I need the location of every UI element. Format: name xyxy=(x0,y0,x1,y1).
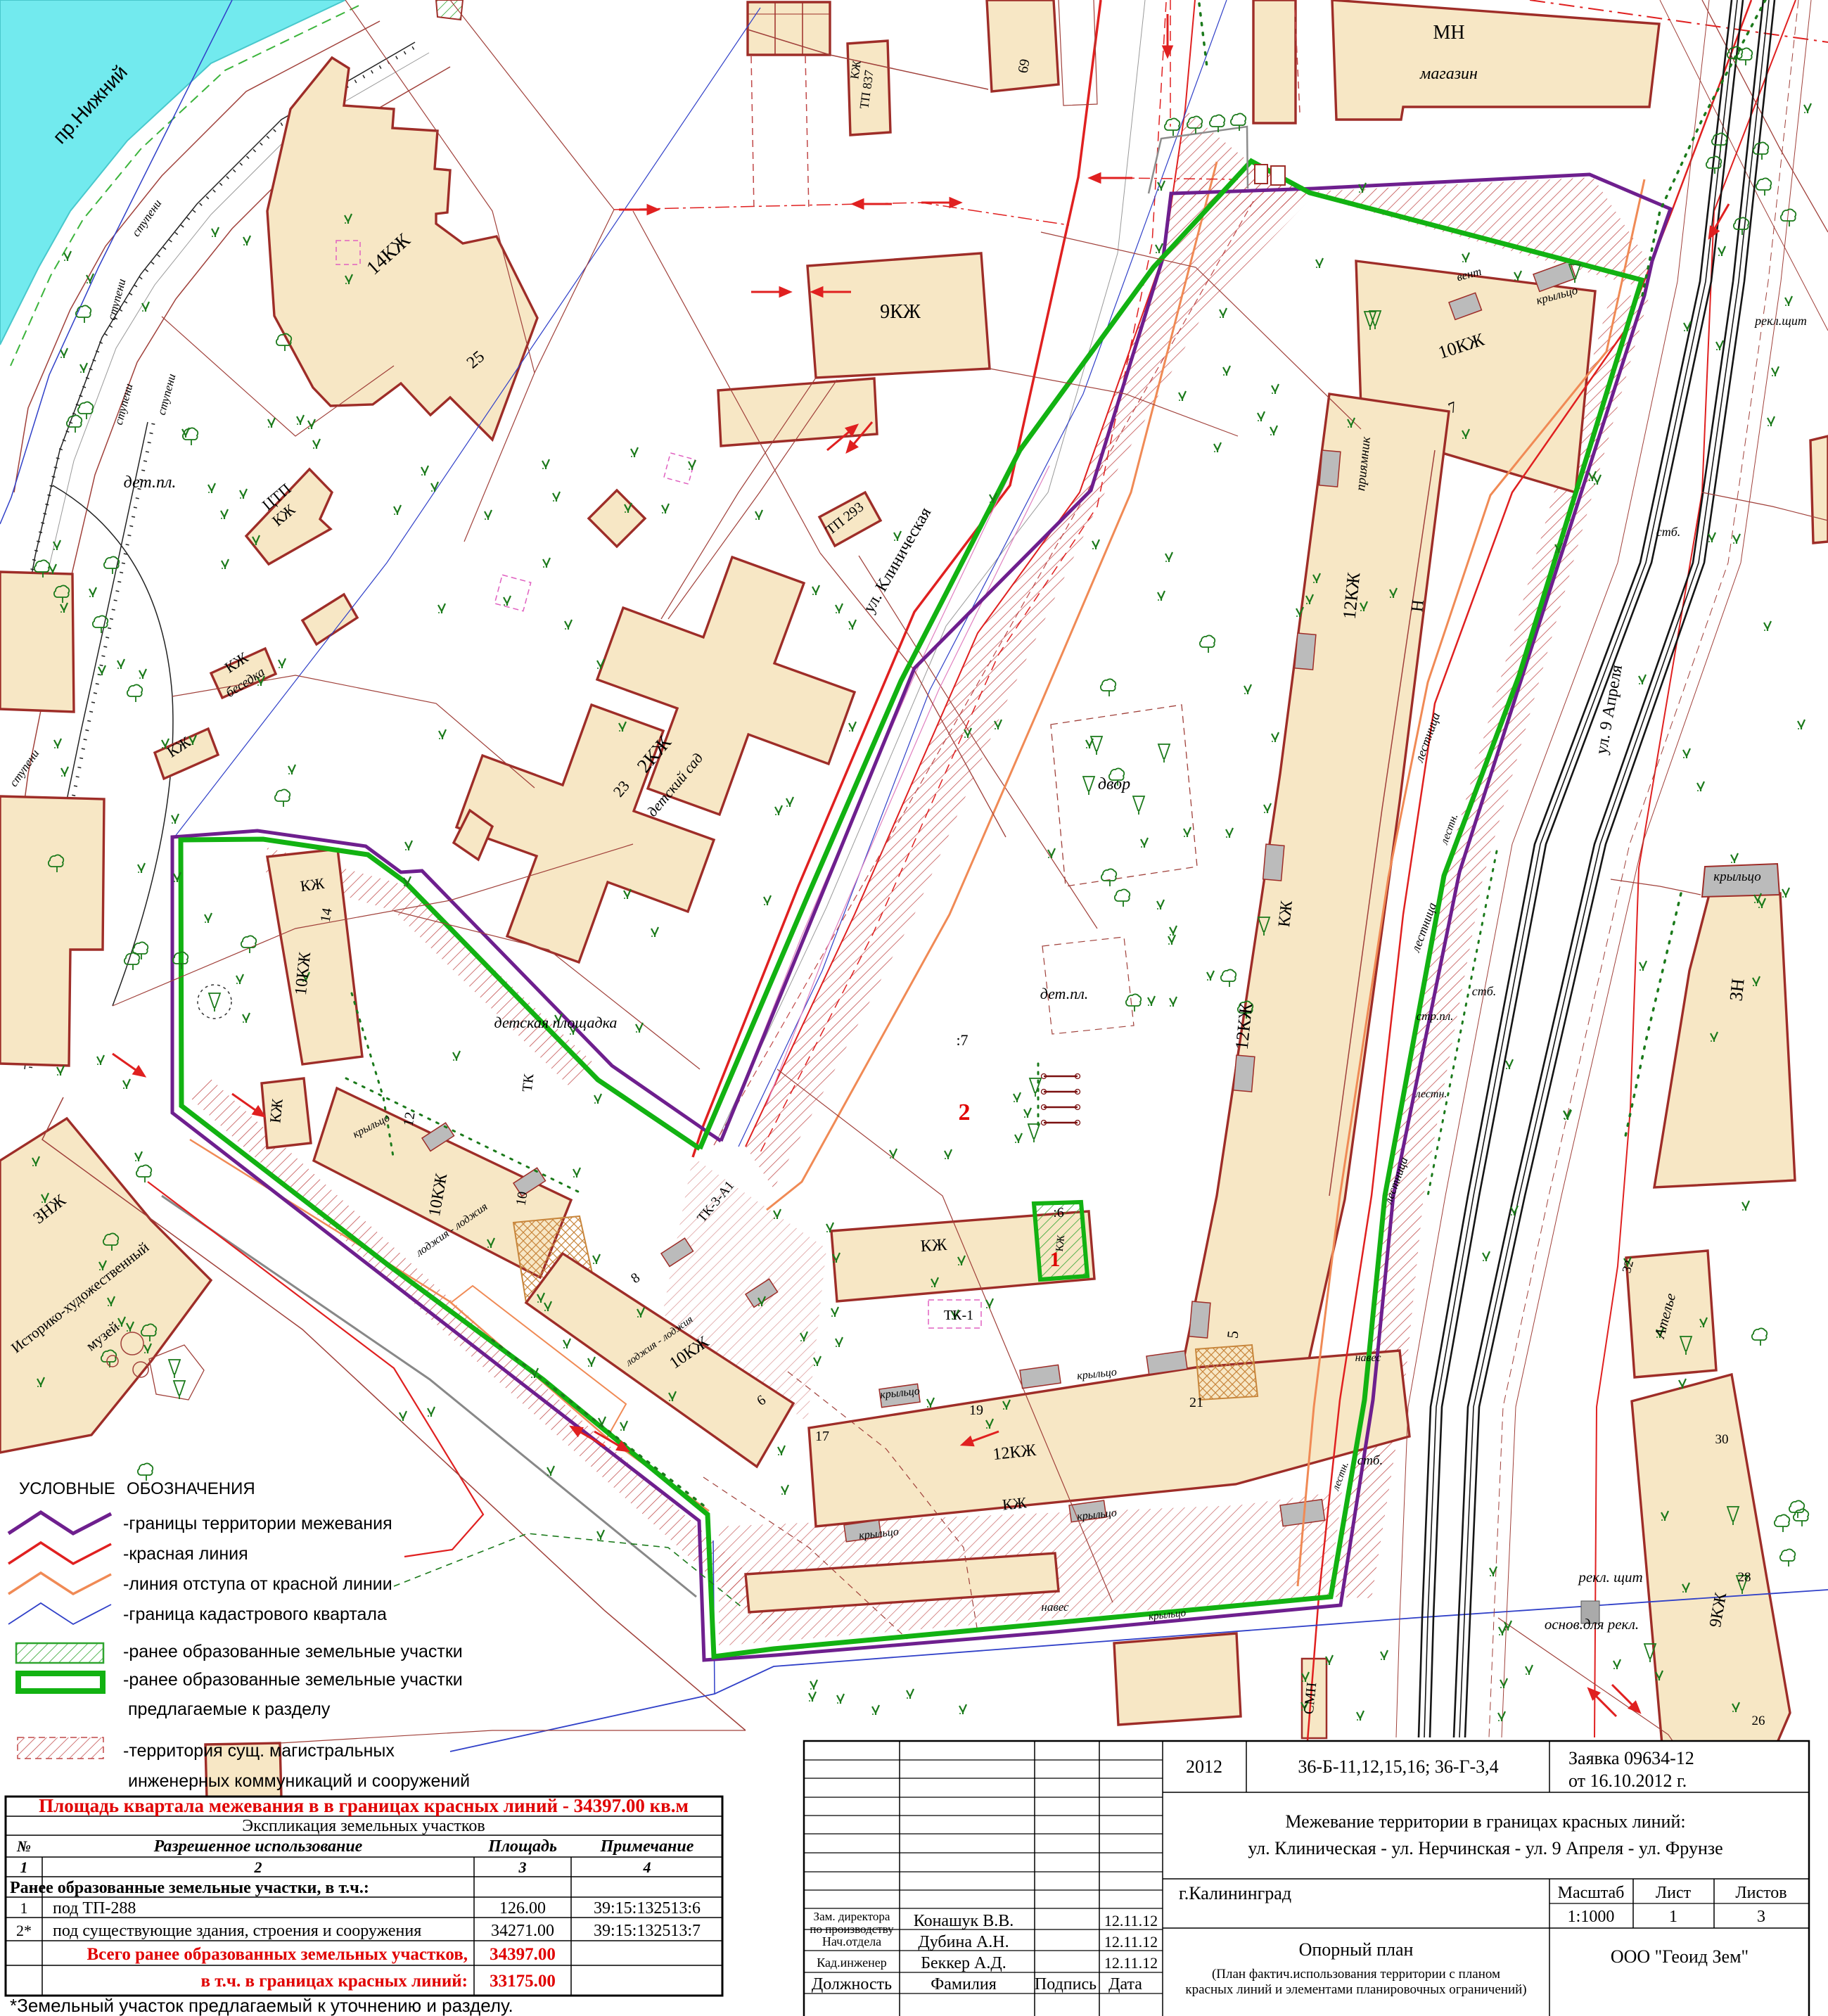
svg-text:30: 30 xyxy=(1715,1432,1729,1447)
svg-text:9КЖ: 9КЖ xyxy=(880,301,921,323)
svg-text:-территория сущ. магистральны: -территория сущ. магистральных xyxy=(123,1741,395,1761)
svg-text::7: :7 xyxy=(956,1031,968,1049)
svg-text:26: 26 xyxy=(1752,1714,1765,1728)
svg-text:под существующие здания, строе: под существующие здания, строения и соор… xyxy=(53,1922,421,1940)
svg-text:1:1000: 1:1000 xyxy=(1568,1908,1615,1926)
svg-text:2: 2 xyxy=(959,1099,971,1125)
svg-text:Разрешенное использование: Разрешенное использование xyxy=(153,1837,363,1856)
svg-text:1: 1 xyxy=(1669,1908,1677,1926)
svg-text::6: :6 xyxy=(1053,1205,1064,1220)
svg-text:2: 2 xyxy=(254,1858,262,1876)
svg-text:34397.00: 34397.00 xyxy=(490,1945,556,1964)
svg-text:14: 14 xyxy=(318,907,335,924)
svg-text:стб.: стб. xyxy=(1656,525,1681,539)
svg-text:3: 3 xyxy=(1757,1908,1765,1926)
svg-text:12.11.12: 12.11.12 xyxy=(1104,1912,1158,1929)
svg-text:Фамилия: Фамилия xyxy=(931,1975,997,1993)
svg-text:Дубина А.Н.: Дубина А.Н. xyxy=(918,1933,1009,1951)
svg-text:2012: 2012 xyxy=(1186,1756,1222,1777)
svg-text:инженерных коммуникаций и соор: инженерных коммуникаций и сооружений xyxy=(128,1771,470,1791)
svg-text:лестн.: лестн. xyxy=(1415,1088,1447,1100)
svg-text:навес: навес xyxy=(1041,1600,1069,1614)
svg-text:рекл.щит: рекл.щит xyxy=(1753,314,1807,328)
svg-text:Кад.инженер: Кад.инженер xyxy=(817,1956,887,1970)
svg-text:Опорный план: Опорный план xyxy=(1299,1939,1414,1960)
svg-text:навес: навес xyxy=(1355,1352,1381,1364)
svg-text:Заявка 09634-12: Заявка 09634-12 xyxy=(1568,1748,1694,1768)
svg-text:КЖ: КЖ xyxy=(1275,900,1296,929)
svg-text:2*: 2* xyxy=(16,1922,32,1939)
svg-text:от 16.10.2012 г.: от 16.10.2012 г. xyxy=(1568,1771,1687,1791)
svg-text:КЖ: КЖ xyxy=(299,874,326,895)
svg-text:-ранее образованные земельные: -ранее образованные земельные участки xyxy=(123,1670,463,1690)
svg-text:-линия отступа от красной лини: -линия отступа от красной линии xyxy=(123,1574,392,1594)
svg-text:Примечание: Примечание xyxy=(600,1837,694,1856)
svg-text:Листов: Листов xyxy=(1735,1884,1787,1902)
svg-text:детская площадка: детская площадка xyxy=(494,1014,618,1031)
svg-text:33175.00: 33175.00 xyxy=(490,1972,556,1991)
svg-text:34271.00: 34271.00 xyxy=(491,1922,554,1940)
svg-text:17: 17 xyxy=(815,1429,829,1444)
svg-text:Площадь: Площадь xyxy=(487,1837,557,1856)
svg-text:дет.пл.: дет.пл. xyxy=(1040,985,1089,1002)
svg-text:Дата: Дата xyxy=(1108,1975,1142,1993)
svg-text:ЗН: ЗН xyxy=(1725,978,1748,1002)
svg-text:крыльцо: крыльцо xyxy=(1713,869,1760,884)
svg-text:28: 28 xyxy=(1738,1570,1751,1585)
svg-text:19: 19 xyxy=(969,1403,983,1418)
svg-text:Лист: Лист xyxy=(1656,1884,1692,1902)
svg-text:Должность: Должность xyxy=(812,1975,892,1993)
svg-text:-ранее образованные земельные: -ранее образованные земельные участки xyxy=(123,1642,463,1661)
svg-text:КЖ: КЖ xyxy=(1002,1493,1028,1513)
svg-text:МН: МН xyxy=(1433,22,1464,44)
svg-text:под ТП-288: под ТП-288 xyxy=(53,1899,136,1918)
svg-text:12: 12 xyxy=(401,1111,418,1128)
svg-text:стб.: стб. xyxy=(1357,1453,1383,1468)
svg-text:39:15:132513:7: 39:15:132513:7 xyxy=(594,1922,701,1940)
svg-text:Беккер А.Д.: Беккер А.Д. xyxy=(921,1954,1006,1972)
svg-text:Н: Н xyxy=(1408,599,1428,613)
svg-text:магазин: магазин xyxy=(1419,65,1478,83)
svg-text:ТК: ТК xyxy=(520,1073,537,1092)
svg-text:69: 69 xyxy=(1016,58,1033,75)
svg-text:ул. Клиническая - ул. Нерчинск: ул. Клиническая - ул. Нерчинская - ул. 9… xyxy=(1248,1838,1722,1858)
svg-text:3: 3 xyxy=(518,1858,527,1876)
svg-text:в т.ч. в границах красных лини: в т.ч. в границах красных линий: xyxy=(200,1972,468,1991)
svg-text:Масштаб: Масштаб xyxy=(1558,1884,1625,1902)
svg-text:126.00: 126.00 xyxy=(499,1899,546,1918)
svg-text:4: 4 xyxy=(643,1858,651,1876)
svg-text:-красная линия: -красная линия xyxy=(123,1544,248,1564)
svg-text:ТК-1: ТК-1 xyxy=(944,1308,973,1323)
svg-text:Экспликация земельных участков: Экспликация земельных участков xyxy=(242,1817,485,1835)
svg-text:21: 21 xyxy=(1189,1395,1203,1410)
svg-text:12.11.12: 12.11.12 xyxy=(1104,1954,1158,1972)
svg-text:12.11.12: 12.11.12 xyxy=(1104,1933,1158,1951)
svg-text:КЖ: КЖ xyxy=(920,1236,948,1256)
svg-text:(План фактич.использования тер: (План фактич.использования территории с … xyxy=(1212,1967,1500,1982)
svg-text:-граница кадастрового квартала: -граница кадастрового квартала xyxy=(123,1604,387,1624)
svg-text:Конашук В.В.: Конашук В.В. xyxy=(914,1912,1014,1930)
svg-text:Зам. директора: Зам. директора xyxy=(814,1910,890,1923)
svg-text:УСЛОВНЫЕ: УСЛОВНЫЕ xyxy=(19,1479,115,1498)
svg-text:Ранее образованные земельные у: Ранее образованные земельные участки, в … xyxy=(10,1879,369,1897)
svg-text:основ.для рекл.: основ.для рекл. xyxy=(1545,1616,1639,1633)
svg-text:Всего ранее образованных земе: Всего ранее образованных земельных участ… xyxy=(87,1945,468,1964)
svg-text:ООО "Геоид Зем": ООО "Геоид Зем" xyxy=(1611,1946,1749,1967)
svg-text:стр.пл.: стр.пл. xyxy=(1417,1009,1454,1023)
svg-text:Межевание территории в граница: Межевание территории в границах красных … xyxy=(1285,1811,1685,1832)
svg-text:рекл. щит: рекл. щит xyxy=(1577,1569,1642,1586)
svg-text:Нач.отдела: Нач.отдела xyxy=(822,1934,881,1948)
svg-text:36-Б-11,12,15,16; 36-Г-3,4: 36-Б-11,12,15,16; 36-Г-3,4 xyxy=(1298,1756,1498,1777)
svg-text:стб.: стб. xyxy=(1472,984,1497,998)
svg-text:10: 10 xyxy=(513,1190,531,1207)
svg-text:дет.пл.: дет.пл. xyxy=(124,473,177,492)
svg-text:1: 1 xyxy=(20,1899,28,1917)
svg-text:красных линий и элементами пла: красных линий и элементами планировочных… xyxy=(1185,1982,1526,1997)
svg-text:КЖ: КЖ xyxy=(266,1098,286,1124)
svg-text:1: 1 xyxy=(20,1858,28,1876)
svg-text:КЖ: КЖ xyxy=(848,59,864,80)
svg-text:двор: двор xyxy=(1098,775,1130,793)
svg-text:предлагаемые к разделу: предлагаемые к разделу xyxy=(128,1699,331,1719)
svg-text:Подпись: Подпись xyxy=(1035,1975,1097,1993)
svg-text:№: № xyxy=(16,1837,31,1855)
svg-text:КЖ: КЖ xyxy=(1054,1235,1067,1253)
svg-text:39:15:132513:6: 39:15:132513:6 xyxy=(594,1899,701,1918)
svg-text:*Земельный участок предлагаемы: *Земельный участок предлагаемый к уточне… xyxy=(10,1995,513,2016)
svg-text:Площадь квартала межевания в в: Площадь квартала межевания в в границах … xyxy=(39,1795,689,1816)
svg-text:ОБОЗНАЧЕНИЯ: ОБОЗНАЧЕНИЯ xyxy=(127,1479,255,1498)
svg-text:г.Калининград: г.Калининград xyxy=(1179,1883,1291,1903)
svg-text:-границы территории межевания: -границы территории межевания xyxy=(123,1514,392,1533)
